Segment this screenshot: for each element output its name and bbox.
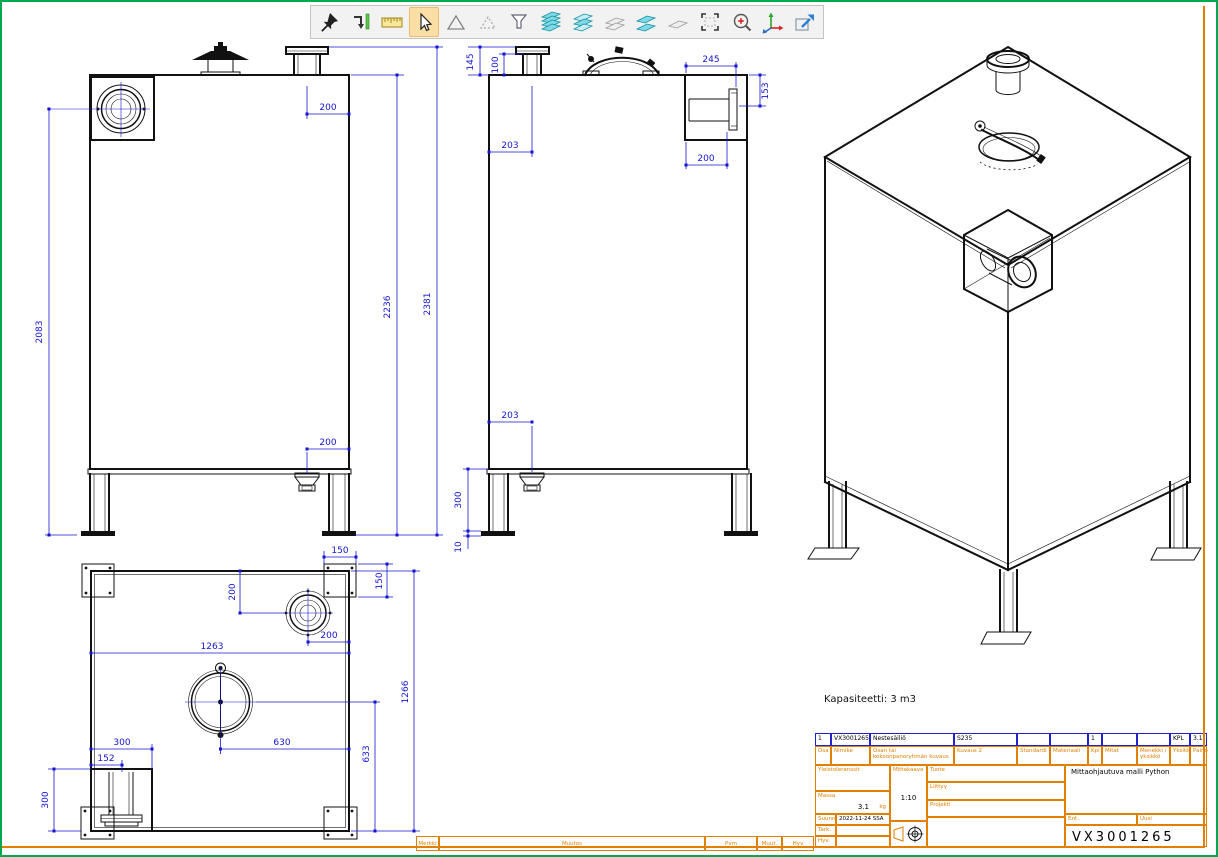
- ruler-tool-button[interactable]: [378, 7, 408, 37]
- dim-side-245: 245: [702, 55, 719, 65]
- product-text: Mittaohjautuva malli Python: [1066, 766, 1206, 779]
- select-cursor-icon: [412, 10, 436, 34]
- dim-top-152: 152: [97, 754, 114, 764]
- rev-muutos: Muutos: [439, 836, 705, 851]
- new-view-button[interactable]: [790, 7, 820, 37]
- ruler-icon: [380, 10, 404, 34]
- top-view[interactable]: 150 150 200 200 1263 1266 630: [41, 546, 420, 839]
- projection-symbol-icon: [891, 822, 926, 846]
- polygon-ghost-tool-button[interactable]: [473, 7, 503, 37]
- dim-side-200: 200: [697, 154, 714, 164]
- rev-pvm: Pvm: [705, 836, 757, 851]
- dim-side-10: 10: [454, 541, 464, 553]
- layer-single-gray-icon: [666, 10, 690, 34]
- massa-value: 3.1: [856, 803, 871, 812]
- filter-icon: [507, 10, 531, 34]
- massa-unit: kg: [877, 803, 888, 811]
- dim-front-drain-200: 200: [319, 438, 336, 448]
- dim-front-nozzle-200: 200: [319, 103, 336, 113]
- toolbar: [310, 5, 824, 39]
- parts-unit: KPL: [1170, 733, 1190, 746]
- pin-icon: [317, 10, 341, 34]
- parts-material: [1050, 733, 1088, 746]
- dim-top-conn-200h: 200: [320, 631, 337, 641]
- label-massa: Massa: [816, 792, 889, 800]
- dimension-update-icon: [349, 10, 373, 34]
- revision-row: Merkki Muutos Pvm Muut. Hyv: [416, 836, 814, 851]
- dim-side-100: 100: [491, 56, 501, 73]
- dim-top-630: 630: [273, 738, 290, 748]
- parts-dims: [1102, 733, 1137, 746]
- label-suunn: Suunn: [815, 814, 836, 825]
- sheet-frame-bottom: [2, 846, 1205, 848]
- pin-tool-button[interactable]: [314, 7, 344, 37]
- label-projekti: Projekti: [928, 801, 1064, 809]
- header-menekki: Menekki / yksikkö: [1137, 746, 1170, 765]
- dim-side-153: 153: [761, 82, 771, 99]
- select-tool-button[interactable]: [409, 7, 439, 37]
- dim-side-203-top: 203: [501, 141, 518, 151]
- header-kuvaus: Osan tai kokoonpanoryhmän kuvaus: [870, 746, 954, 765]
- label-ent: Ent.: [1065, 814, 1137, 825]
- layers-flat-button[interactable]: [600, 7, 630, 37]
- dim-top-300h: 300: [41, 791, 51, 808]
- label-tark: Tark.: [815, 825, 836, 836]
- label-yleistoleranssit: Yleistoleranssit: [816, 766, 889, 774]
- dim-side-203-bottom: 203: [501, 411, 518, 421]
- layers-stack-button[interactable]: [536, 7, 566, 37]
- layers-stack-icon: [539, 10, 563, 34]
- drawing-canvas[interactable]: 2083 200 2236 2381 200: [0, 0, 1218, 857]
- front-view[interactable]: 2083 200 2236 2381 200: [35, 42, 443, 537]
- dim-top-150w: 150: [331, 546, 348, 556]
- drawing-sheet[interactable]: 2083 200 2236 2381 200: [2, 2, 1218, 857]
- axes-icon: [761, 10, 785, 34]
- dim-side-145: 145: [466, 53, 476, 70]
- header-standardi: Standardi: [1017, 746, 1050, 765]
- layers-pair-button[interactable]: [632, 7, 662, 37]
- header-osa: Osa: [815, 746, 831, 765]
- parts-pos: 1: [815, 733, 831, 746]
- polygon-dashed-icon: [476, 10, 500, 34]
- drawing-number: VX3001265: [1065, 825, 1207, 847]
- rev-hyv: Hyv: [782, 836, 814, 851]
- suunn-value: 2022-11-24 SSA: [836, 814, 890, 825]
- sheet-frame-right: [1203, 6, 1205, 848]
- isometric-view[interactable]: [808, 47, 1201, 644]
- rev-muut: Muut.: [757, 836, 782, 851]
- layer-single-button[interactable]: [663, 7, 693, 37]
- header-nimike: Nimike: [831, 746, 870, 765]
- dimension-update-button[interactable]: [346, 7, 376, 37]
- dim-front-2381: 2381: [423, 293, 433, 316]
- header-kpl: Kpl: [1088, 746, 1102, 765]
- title-block: 1 VX3001265 Nestesäiliö S235 1 KPL 3.1 O…: [814, 731, 1208, 848]
- label-liittyy: Liittyy: [928, 783, 1064, 791]
- label-uusi: Uusi: [1137, 814, 1207, 825]
- dim-top-633: 633: [362, 745, 372, 762]
- dim-side-300: 300: [454, 491, 464, 508]
- parts-name: Nestesäiliö: [870, 733, 954, 746]
- layers-multi-button[interactable]: [568, 7, 598, 37]
- polygon-icon: [444, 10, 468, 34]
- header-yksikko: Yksikkö: [1170, 746, 1190, 765]
- dim-top-1266: 1266: [401, 680, 411, 703]
- area-select-button[interactable]: [695, 7, 725, 37]
- header-materiaali: Materiaali: [1050, 746, 1088, 765]
- zoom-in-button[interactable]: [727, 7, 757, 37]
- capacity-note: Kapasiteetti: 3 m3: [824, 694, 916, 705]
- parts-standard: [1017, 733, 1050, 746]
- area-select-icon: [698, 10, 722, 34]
- filter-tool-button[interactable]: [505, 7, 535, 37]
- dim-top-300w: 300: [113, 738, 130, 748]
- polygon-tool-button[interactable]: [441, 7, 471, 37]
- mittakaava-value: 1:10: [891, 794, 926, 803]
- dim-top-150h: 150: [375, 572, 385, 589]
- parts-desc2: S235: [954, 733, 1017, 746]
- layers-flat-gray-icon: [603, 10, 627, 34]
- dim-front-2083: 2083: [35, 321, 45, 344]
- header-mitat: Mitat: [1102, 746, 1137, 765]
- dim-top-1263: 1263: [201, 642, 224, 652]
- layers-pair-icon: [634, 10, 658, 34]
- empty-cell: [927, 817, 1065, 847]
- label-mittakaava: Mittakaava: [891, 766, 926, 774]
- dim-front-2236: 2236: [383, 295, 393, 318]
- label-tuote: Tuote: [928, 766, 1064, 774]
- side-view[interactable]: 145 100 203 245 153 200 203: [454, 46, 771, 553]
- parts-qty: 1: [1088, 733, 1102, 746]
- axes-button[interactable]: [759, 7, 789, 37]
- tark-value: [836, 825, 890, 836]
- zoom-in-icon: [730, 10, 754, 34]
- layers-multi-icon: [571, 10, 595, 34]
- header-kuvaus2: Kuvaus 2: [954, 746, 1017, 765]
- rev-merkki: Merkki: [416, 836, 439, 851]
- dim-top-conn-200v: 200: [228, 583, 238, 600]
- new-view-icon: [793, 10, 817, 34]
- parts-code: VX3001265: [831, 733, 870, 746]
- parts-consumption: [1137, 733, 1170, 746]
